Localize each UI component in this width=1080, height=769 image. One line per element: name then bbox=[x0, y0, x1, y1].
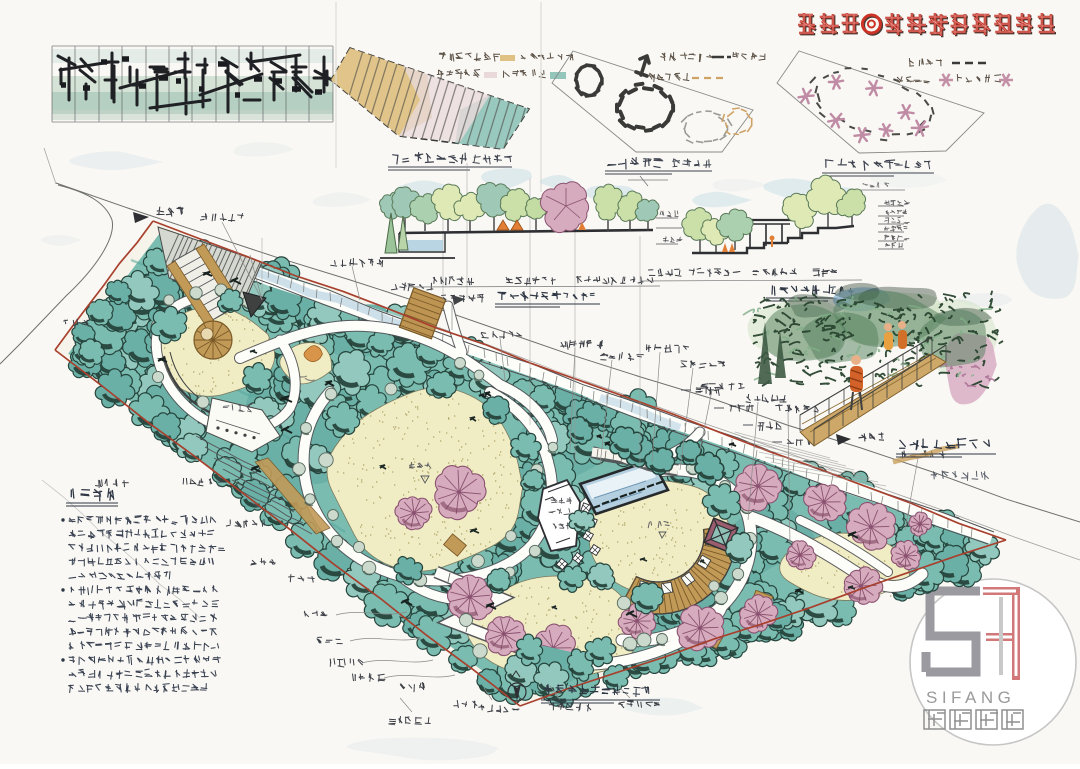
svg-text:SIFANG: SIFANG bbox=[926, 688, 1015, 707]
